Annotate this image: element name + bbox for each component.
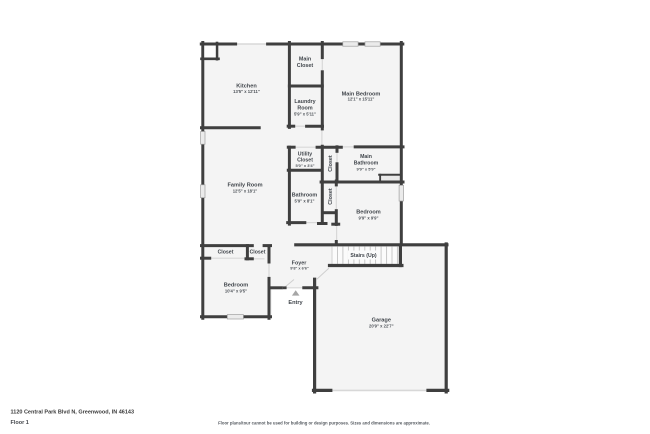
svg-text:13'5" x 12'11": 13'5" x 12'11" (233, 89, 260, 94)
svg-text:20'9" x 22'7": 20'9" x 22'7" (369, 324, 394, 329)
svg-text:5'9" x 5'11": 5'9" x 5'11" (294, 111, 316, 116)
svg-text:9'9" x 9'9": 9'9" x 9'9" (359, 216, 379, 221)
svg-text:Floor 1: Floor 1 (11, 420, 29, 426)
svg-text:5'0" x 3'4": 5'0" x 3'4" (295, 163, 314, 168)
svg-text:Closet: Closet (218, 249, 234, 255)
svg-text:12'5" x 18'1": 12'5" x 18'1" (233, 188, 258, 193)
svg-text:1120 Central Park Blvd N, Gree: 1120 Central Park Blvd N, Greenwood, IN … (11, 410, 135, 416)
svg-text:12'1" x 15'11": 12'1" x 15'11" (348, 96, 375, 101)
svg-text:Closet: Closet (297, 63, 314, 69)
svg-text:10'4" x 9'5": 10'4" x 9'5" (225, 289, 247, 294)
svg-text:Closet: Closet (250, 249, 266, 255)
svg-text:9'9" x 5'9": 9'9" x 5'9" (356, 167, 375, 172)
svg-text:Entry: Entry (288, 300, 303, 306)
svg-text:9'8" x 6'6": 9'8" x 6'6" (290, 265, 309, 270)
svg-text:Laundry: Laundry (294, 99, 315, 105)
svg-text:Main: Main (360, 154, 372, 160)
svg-text:5'9" x 8'1": 5'9" x 8'1" (295, 199, 315, 204)
svg-text:Closet: Closet (328, 155, 334, 172)
svg-text:Bathroom: Bathroom (354, 160, 379, 166)
svg-text:Main: Main (299, 56, 311, 62)
svg-text:Stairs (Up): Stairs (Up) (350, 253, 377, 259)
svg-text:Closet: Closet (328, 188, 334, 205)
svg-text:Floor plans/tour cannot be use: Floor plans/tour cannot be used for buil… (218, 421, 430, 426)
